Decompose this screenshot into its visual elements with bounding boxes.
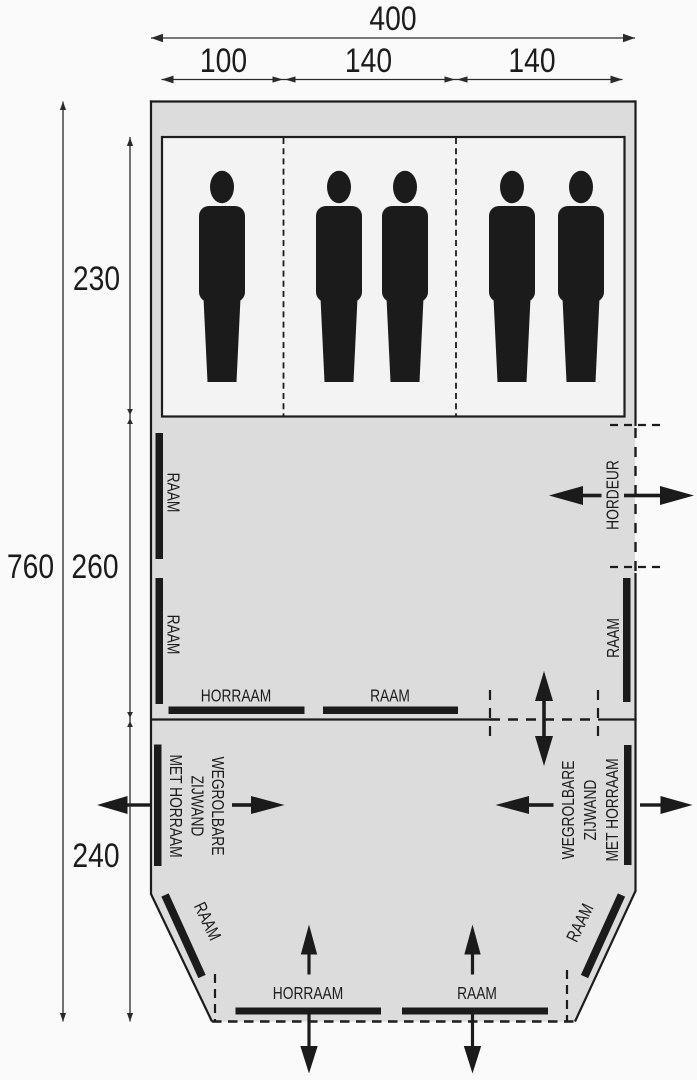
svg-text:240: 240 <box>72 835 119 874</box>
svg-text:ZIJWAND: ZIJWAND <box>187 776 206 837</box>
svg-text:100: 100 <box>200 40 247 79</box>
svg-text:RAAM: RAAM <box>370 687 410 706</box>
svg-text:HORRAAM: HORRAAM <box>273 984 343 1003</box>
svg-text:ZIJWAND: ZIJWAND <box>581 780 600 841</box>
svg-text:RAAM: RAAM <box>457 984 497 1003</box>
svg-text:140: 140 <box>345 40 392 79</box>
svg-text:RAAM: RAAM <box>163 473 182 513</box>
svg-text:HORRAAM: HORRAAM <box>201 687 271 706</box>
svg-text:HORDEUR: HORDEUR <box>604 460 623 530</box>
svg-text:230: 230 <box>73 258 120 297</box>
svg-text:400: 400 <box>369 0 416 38</box>
svg-text:WEGROLBARE: WEGROLBARE <box>560 761 579 860</box>
svg-text:260: 260 <box>71 546 118 585</box>
svg-text:MET HORRAAM: MET HORRAAM <box>603 758 622 861</box>
svg-text:760: 760 <box>7 546 54 585</box>
svg-text:WEGROLBARE: WEGROLBARE <box>207 757 226 856</box>
svg-text:140: 140 <box>508 40 555 79</box>
svg-text:MET HORRAAM: MET HORRAAM <box>165 754 184 857</box>
svg-text:RAAM: RAAM <box>163 615 182 655</box>
svg-text:RAAM: RAAM <box>604 618 623 658</box>
